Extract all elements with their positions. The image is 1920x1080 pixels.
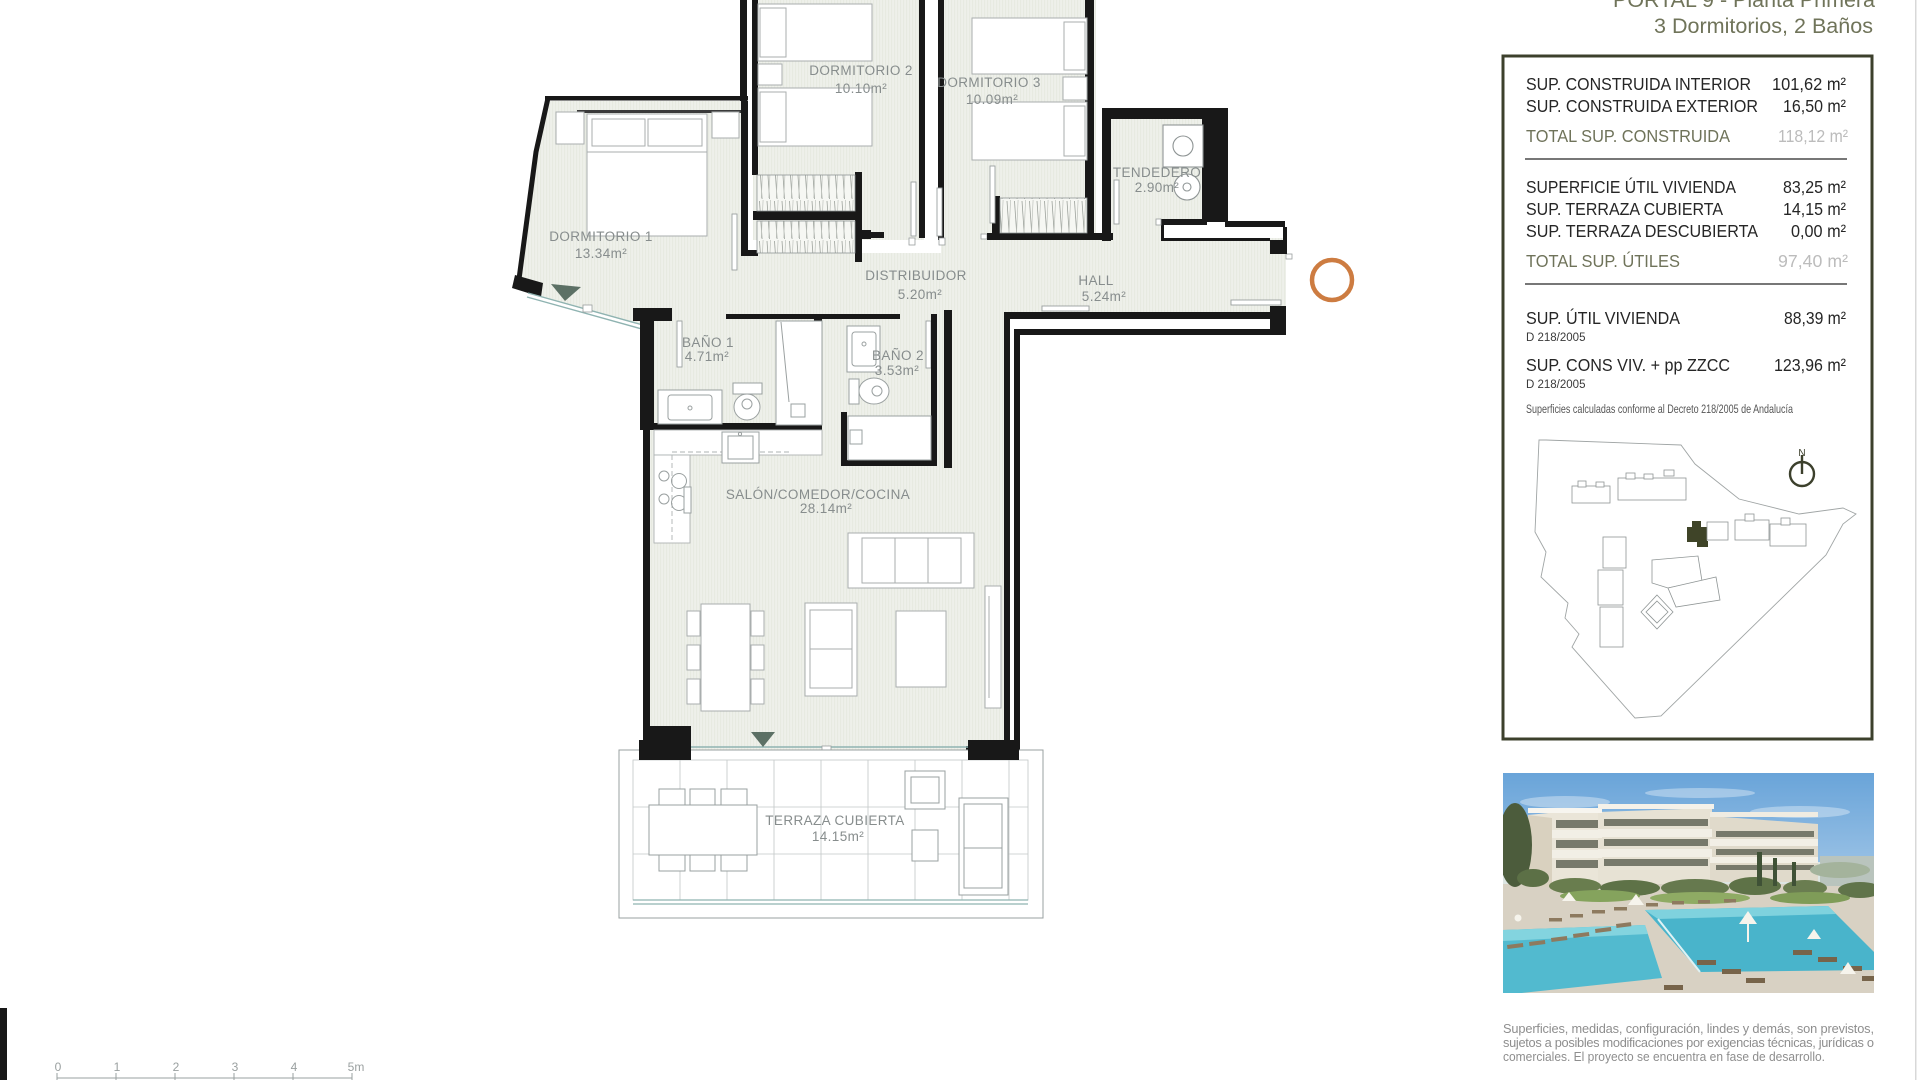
svg-text:Superficies calculadas conform: Superficies calculadas conforme al Decre… bbox=[1526, 402, 1793, 416]
svg-text:SUP. TERRAZA CUBIERTA: SUP. TERRAZA CUBIERTA bbox=[1526, 199, 1723, 219]
svg-text:SUP. CONS VIV. + pp ZZCC: SUP. CONS VIV. + pp ZZCC bbox=[1526, 355, 1730, 375]
svg-text:SALÓN/COMEDOR/COCINA: SALÓN/COMEDOR/COCINA bbox=[726, 487, 910, 502]
svg-text:14,15 m²: 14,15 m² bbox=[1783, 199, 1846, 219]
svg-text:13.34m²: 13.34m² bbox=[575, 246, 627, 261]
svg-text:TERRAZA CUBIERTA: TERRAZA CUBIERTA bbox=[765, 813, 904, 828]
svg-text:comerciales. El proyecto se en: comerciales. El proyecto se encuentra en… bbox=[1503, 1049, 1825, 1064]
svg-text:0: 0 bbox=[55, 1060, 62, 1074]
svg-text:14.15m²: 14.15m² bbox=[812, 829, 864, 844]
svg-text:5.24m²: 5.24m² bbox=[1082, 289, 1127, 304]
svg-text:DISTRIBUIDOR: DISTRIBUIDOR bbox=[865, 268, 967, 283]
svg-text:5m: 5m bbox=[348, 1060, 365, 1074]
svg-text:2: 2 bbox=[173, 1060, 180, 1074]
svg-text:DORMITORIO 3: DORMITORIO 3 bbox=[937, 75, 1041, 90]
svg-text:10.10m²: 10.10m² bbox=[835, 81, 887, 96]
svg-text:5.20m²: 5.20m² bbox=[898, 287, 943, 302]
svg-text:4: 4 bbox=[291, 1060, 298, 1074]
svg-text:88,39 m²: 88,39 m² bbox=[1784, 308, 1846, 328]
svg-text:DORMITORIO 1: DORMITORIO 1 bbox=[549, 229, 653, 244]
svg-text:TOTAL SUP. CONSTRUIDA: TOTAL SUP. CONSTRUIDA bbox=[1526, 126, 1730, 146]
svg-text:3: 3 bbox=[232, 1060, 239, 1074]
svg-text:SUP. ÚTIL VIVIENDA: SUP. ÚTIL VIVIENDA bbox=[1526, 307, 1680, 328]
svg-text:SUP. TERRAZA DESCUBIERTA: SUP. TERRAZA DESCUBIERTA bbox=[1526, 221, 1758, 241]
svg-text:BAÑO 1: BAÑO 1 bbox=[682, 335, 734, 350]
svg-text:10.09m²: 10.09m² bbox=[966, 92, 1018, 107]
svg-text:123,96 m²: 123,96 m² bbox=[1774, 355, 1846, 375]
svg-text:3.53m²: 3.53m² bbox=[875, 363, 920, 378]
svg-text:DORMITORIO 2: DORMITORIO 2 bbox=[809, 63, 913, 78]
svg-text:N: N bbox=[1798, 448, 1805, 459]
svg-text:2.90m²: 2.90m² bbox=[1135, 180, 1180, 195]
svg-text:83,25 m²: 83,25 m² bbox=[1783, 177, 1846, 197]
svg-text:28.14m²: 28.14m² bbox=[800, 501, 852, 516]
svg-text:4.71m²: 4.71m² bbox=[685, 349, 730, 364]
svg-text:HALL: HALL bbox=[1078, 273, 1113, 288]
svg-text:TENDEDERO: TENDEDERO bbox=[1113, 165, 1201, 180]
svg-text:D 218/2005: D 218/2005 bbox=[1526, 379, 1585, 391]
svg-text:BAÑO 2: BAÑO 2 bbox=[872, 348, 924, 363]
svg-text:97,40 m²: 97,40 m² bbox=[1778, 251, 1848, 271]
svg-text:3 Dormitorios, 2 Baños: 3 Dormitorios, 2 Baños bbox=[1654, 15, 1873, 38]
svg-text:0,00 m²: 0,00 m² bbox=[1791, 221, 1846, 241]
svg-text:16,50 m²: 16,50 m² bbox=[1783, 96, 1846, 116]
svg-text:SUPERFICIE ÚTIL VIVIENDA: SUPERFICIE ÚTIL VIVIENDA bbox=[1526, 176, 1736, 197]
svg-text:101,62 m²: 101,62 m² bbox=[1772, 74, 1846, 94]
svg-text:118,12 m²: 118,12 m² bbox=[1778, 126, 1848, 146]
svg-text:Superficies, medidas, configur: Superficies, medidas, configuración, lin… bbox=[1503, 1021, 1874, 1036]
svg-text:TOTAL SUP. ÚTILES: TOTAL SUP. ÚTILES bbox=[1526, 250, 1680, 271]
svg-text:SUP. CONSTRUIDA INTERIOR: SUP. CONSTRUIDA INTERIOR bbox=[1526, 74, 1751, 94]
svg-text:1: 1 bbox=[114, 1060, 121, 1074]
svg-text:PORTAL 9 - Planta Primera: PORTAL 9 - Planta Primera bbox=[1613, 0, 1875, 12]
svg-text:SUP. CONSTRUIDA EXTERIOR: SUP. CONSTRUIDA EXTERIOR bbox=[1526, 96, 1758, 116]
svg-text:sujetos a posibles modificacio: sujetos a posibles modificaciones por ex… bbox=[1503, 1035, 1874, 1050]
svg-text:D 218/2005: D 218/2005 bbox=[1526, 332, 1585, 344]
